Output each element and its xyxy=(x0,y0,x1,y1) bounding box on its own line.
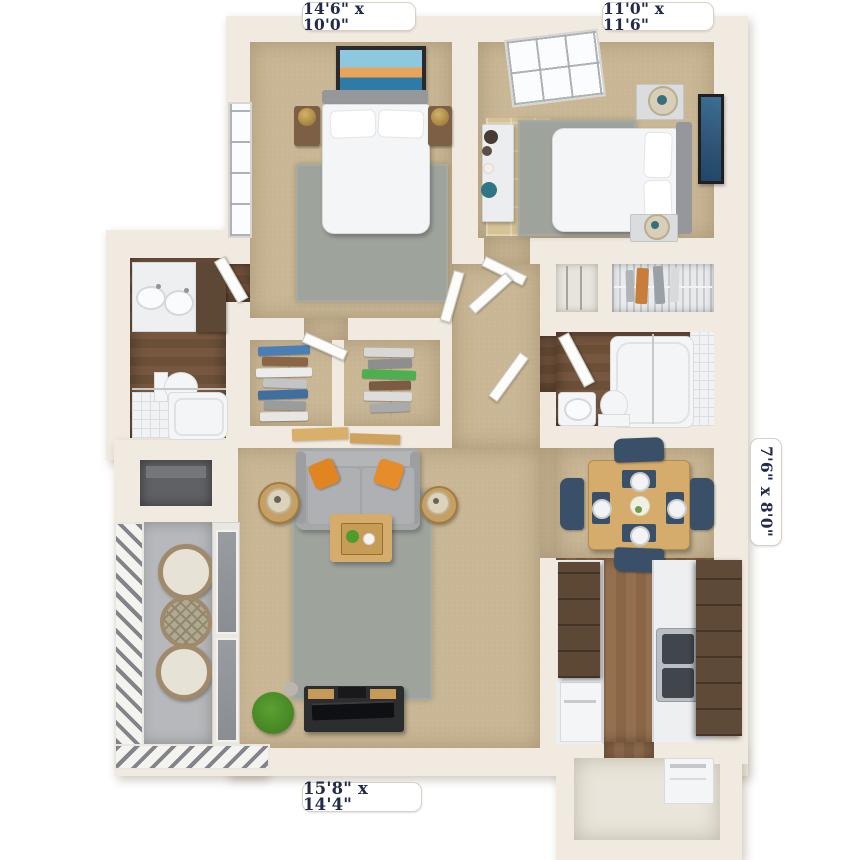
closet-a-floor xyxy=(556,264,598,312)
closet-garment xyxy=(369,381,411,391)
tv-console-wood-accent xyxy=(370,689,396,699)
faucet xyxy=(184,288,189,293)
wall-bedroom1-bottom-b xyxy=(348,318,452,340)
closet-garment xyxy=(263,378,307,389)
bed-1-pillow-right xyxy=(378,109,425,139)
tv-console-wood-accent xyxy=(308,689,334,699)
wall-closet-right xyxy=(440,340,452,426)
coffee-table-plant xyxy=(346,530,359,543)
wall-kitchen-left xyxy=(540,558,556,748)
console-candle xyxy=(483,163,494,174)
coffee-table-bowl xyxy=(363,533,375,545)
dinner-plate xyxy=(592,499,612,519)
closet-garment xyxy=(256,368,312,378)
television xyxy=(312,701,395,721)
tv-console-slot xyxy=(338,687,366,698)
closet-garment xyxy=(262,357,308,367)
living-dining-opening-floor xyxy=(540,448,556,558)
patio-table xyxy=(160,596,212,648)
linen-garment xyxy=(669,268,679,302)
closet-shelf-board xyxy=(350,433,400,445)
wall-bedroom1-bottom-a xyxy=(226,318,304,340)
wall-closets-bottom xyxy=(556,312,714,332)
wall-storage-bottom xyxy=(118,506,214,522)
plant-pot xyxy=(284,682,298,696)
balcony-railing-left xyxy=(114,522,144,764)
entry-appliance-seam xyxy=(670,778,706,780)
console-wall-plate-large xyxy=(484,130,498,144)
sink-2-basin xyxy=(564,398,592,421)
side-table-lamp-left-finial xyxy=(274,496,281,503)
storage-shelf xyxy=(146,466,206,478)
vanity-sink-right xyxy=(164,290,194,316)
closet-garment xyxy=(260,412,308,422)
dinner-plate xyxy=(667,499,687,519)
patio-chair-top xyxy=(158,544,214,600)
stove-door-handle xyxy=(564,700,596,703)
sink-basin-bottom xyxy=(662,668,694,698)
kitchen-cabinets-left xyxy=(558,562,600,678)
closet-garment xyxy=(364,348,414,358)
dining-chair-left xyxy=(560,478,584,530)
console-wall-plate-small xyxy=(482,146,492,156)
dining-chair-top xyxy=(614,437,665,463)
bed-2-pillow-top xyxy=(643,132,673,179)
dining-chair-right xyxy=(690,478,714,530)
balcony-railing-bottom xyxy=(114,744,270,770)
closet-garment xyxy=(362,369,416,380)
console-teal-vase xyxy=(481,182,497,198)
wall-living-left-upper xyxy=(212,448,238,522)
closet-garment xyxy=(258,345,310,356)
closet-garment xyxy=(368,358,412,369)
bed-2-headboard xyxy=(676,122,692,234)
closet-garment xyxy=(264,401,306,411)
bedroom-2-wall-art xyxy=(698,94,724,184)
closet-shelf-board xyxy=(292,427,348,441)
stove xyxy=(560,682,602,742)
entry-appliance-handle xyxy=(670,764,706,768)
brass-lamp-left xyxy=(298,108,316,126)
wall-kitchen-bottom-a xyxy=(556,742,604,756)
kitchen-cabinets-right xyxy=(696,560,742,736)
patio-chair-bottom xyxy=(156,644,212,700)
living-room-dimension-label: 15'8" x 14'4" xyxy=(302,782,422,812)
bathroom-2-door-opening xyxy=(540,336,556,392)
dining-dimension-text: 7'6" x 8'0" xyxy=(758,446,774,537)
living-room-dimension-text: 15'8" x 14'4" xyxy=(303,781,421,814)
sliding-door-pane-bottom xyxy=(216,638,238,742)
brass-lamp-right xyxy=(431,108,449,126)
side-table-lamp-right-finial xyxy=(433,498,439,504)
floor-plan: 14'6" x 10'0" 11'0" x 11'6" 7'6" x 8'0" … xyxy=(0,0,860,860)
wall-closetA-linen-divider xyxy=(598,264,612,312)
sink-basin-top xyxy=(662,634,694,664)
wall-bedroom2-bottom-b xyxy=(530,238,714,264)
kitchen-entry-opening xyxy=(604,742,654,758)
bedroom-1-window xyxy=(228,102,252,238)
sliding-door-pane-top xyxy=(216,530,238,634)
faucet xyxy=(156,284,161,289)
bedroom-2-dimension-label: 11'0" x 11'6" xyxy=(602,2,714,31)
potted-plant xyxy=(252,692,294,734)
teal-lamp-top-core xyxy=(657,95,667,105)
wall-hall-right-a xyxy=(540,264,556,336)
linen-garment xyxy=(635,268,649,305)
bedroom-1-dimension-text: 14'6" x 10'0" xyxy=(303,1,415,32)
closet-garment xyxy=(364,392,412,402)
bed-1-pillow-left xyxy=(330,109,377,139)
wall-hall-right-b xyxy=(540,392,556,448)
teal-lamp-bottom-core xyxy=(651,221,659,229)
vanity-sink-left xyxy=(136,286,166,310)
closet-a-shelf-line xyxy=(580,266,582,310)
bathtub-1-basin xyxy=(174,398,224,436)
wall-bedroom-divider xyxy=(452,16,478,264)
toilet-2-tank xyxy=(598,414,630,427)
flower-centerpiece-greens xyxy=(635,506,642,513)
closet-a-shelf-line xyxy=(566,266,568,310)
bedroom-2-dimension-text: 11'0" x 11'6" xyxy=(603,1,713,32)
dinner-plate xyxy=(630,472,650,492)
bedroom-1-dimension-label: 14'6" x 10'0" xyxy=(302,2,416,31)
sofa-arm-left xyxy=(296,452,306,524)
closet-garment xyxy=(258,389,308,400)
wall-kitchen-bottom-b xyxy=(654,742,714,756)
dinner-plate xyxy=(630,526,650,546)
shower-rod-2 xyxy=(652,334,654,424)
shower-rod-1 xyxy=(132,388,226,390)
bedroom-2-skylight-window xyxy=(504,29,606,108)
closet-garment xyxy=(370,402,410,412)
linen-garment xyxy=(625,270,634,302)
dining-dimension-label: 7'6" x 8'0" xyxy=(750,438,782,546)
bed-1-headboard xyxy=(322,90,428,104)
